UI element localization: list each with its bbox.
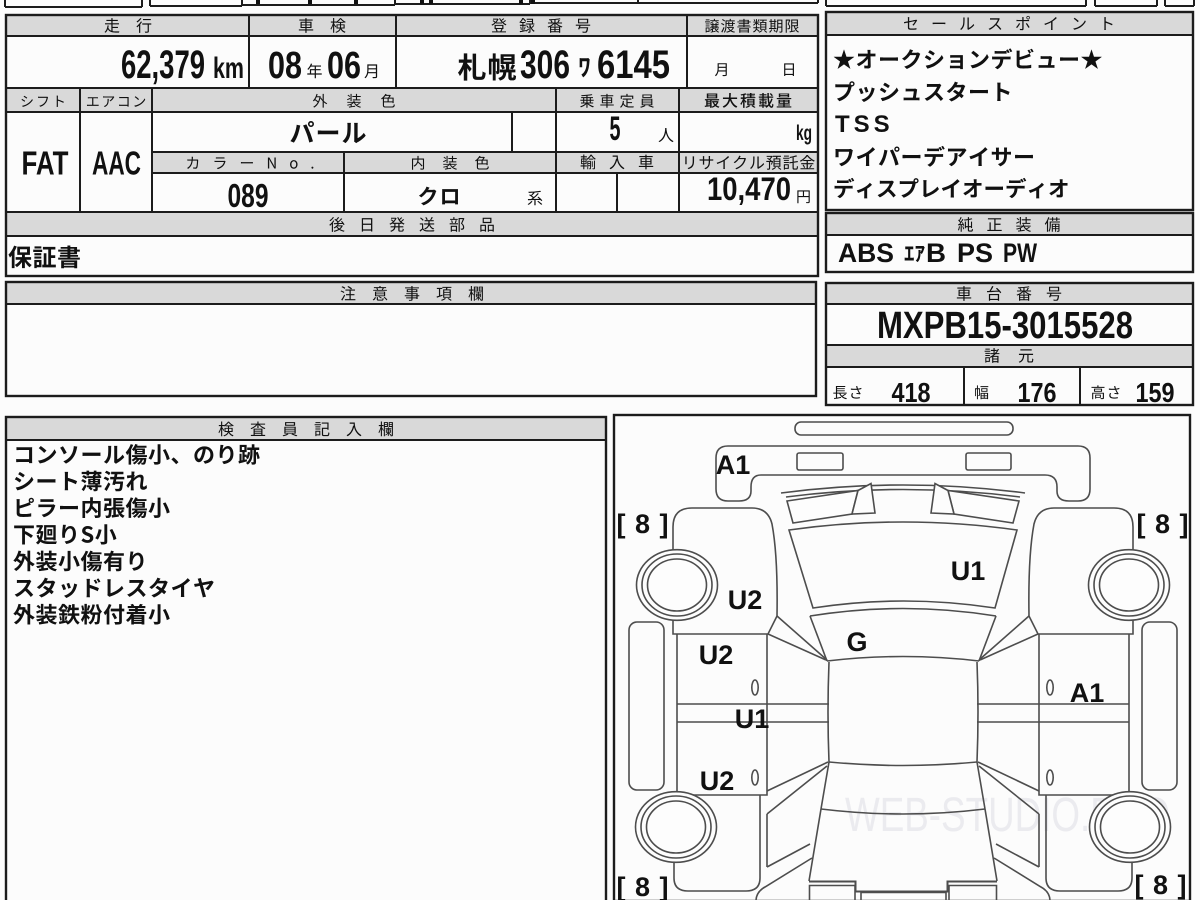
svg-text:62,379: 62,379: [121, 43, 205, 87]
svg-text:U2: U2: [699, 640, 734, 670]
svg-text:km: km: [213, 52, 244, 85]
svg-text:418: 418: [892, 377, 931, 408]
svg-text:6145: 6145: [597, 43, 670, 87]
svg-text:5: 5: [610, 110, 621, 148]
svg-text:kg: kg: [796, 122, 812, 145]
svg-text:A1: A1: [716, 450, 751, 480]
svg-text:MXPB15-3015528: MXPB15-3015528: [877, 305, 1133, 347]
svg-text:G: G: [846, 627, 867, 657]
svg-text:[ 8 ]: [ 8 ]: [1134, 870, 1187, 900]
svg-text:A1: A1: [1070, 678, 1105, 708]
svg-text:PS: PS: [957, 238, 993, 268]
svg-text:306: 306: [520, 43, 570, 87]
svg-text:08: 08: [268, 45, 302, 87]
svg-text:176: 176: [1018, 377, 1057, 408]
svg-text:089: 089: [228, 177, 269, 214]
svg-text:U1: U1: [951, 556, 986, 586]
svg-text:[ 8 ]: [ 8 ]: [1136, 509, 1189, 539]
svg-text:[ 8 ]: [ 8 ]: [616, 872, 669, 900]
svg-text:U1: U1: [735, 704, 770, 734]
svg-text:U2: U2: [728, 585, 763, 615]
svg-text:U2: U2: [700, 766, 735, 796]
svg-text:TSS: TSS: [835, 111, 894, 138]
svg-text:159: 159: [1136, 377, 1175, 408]
svg-text:ABS: ABS: [838, 238, 894, 268]
svg-text:[ 8 ]: [ 8 ]: [616, 509, 669, 539]
svg-text:B: B: [926, 238, 946, 268]
svg-text:10,470: 10,470: [707, 171, 791, 207]
svg-text:06: 06: [327, 45, 361, 87]
svg-text:PW: PW: [1003, 238, 1037, 268]
svg-text:AAC: AAC: [92, 145, 141, 182]
svg-text:FAT: FAT: [22, 145, 69, 182]
